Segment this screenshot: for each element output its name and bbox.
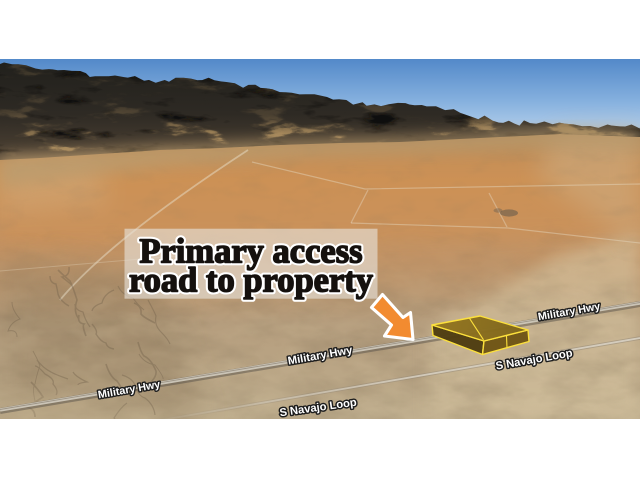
svg-text:road to property: road to property [129,262,373,300]
